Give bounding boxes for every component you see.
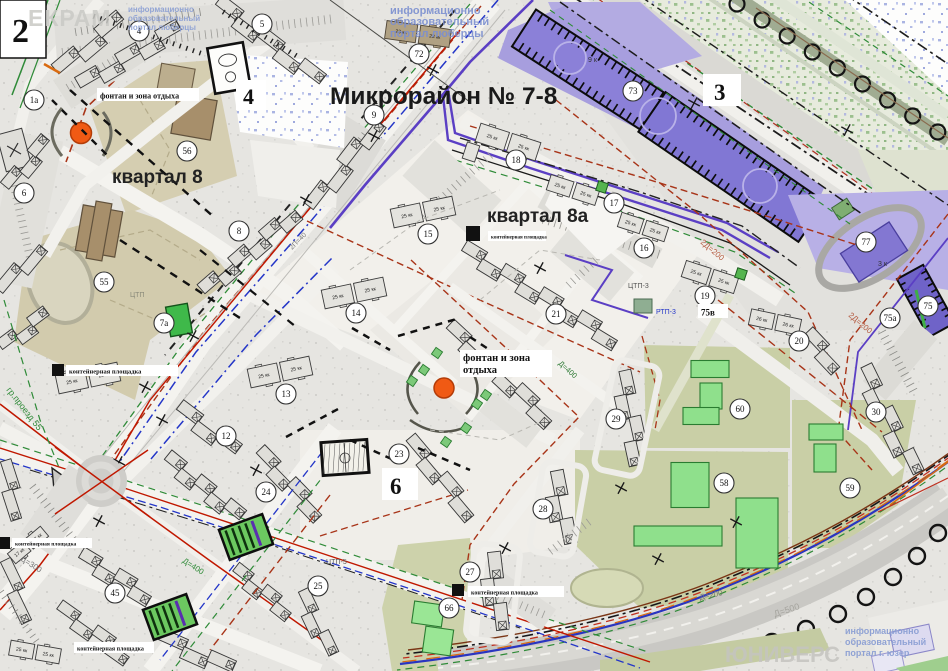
svg-text:фонтан и зона отдыха: фонтан и зона отдыха bbox=[100, 92, 179, 101]
svg-text:9 к: 9 к bbox=[588, 57, 598, 64]
svg-text:квартал 8а: квартал 8а bbox=[487, 206, 589, 227]
svg-text:77: 77 bbox=[862, 237, 872, 247]
svg-text:контейнерная площадка: контейнерная площадка bbox=[15, 541, 77, 548]
svg-text:3 к: 3 к bbox=[878, 261, 888, 268]
svg-text:20: 20 bbox=[795, 336, 805, 346]
svg-text:5: 5 bbox=[260, 19, 265, 29]
svg-text:73: 73 bbox=[629, 86, 639, 96]
svg-text:информационно: информационно bbox=[845, 626, 920, 636]
svg-text:59: 59 bbox=[846, 483, 856, 493]
svg-text:3: 3 bbox=[714, 80, 726, 105]
svg-text:отдыха: отдыха bbox=[463, 365, 498, 376]
svg-text:9: 9 bbox=[372, 110, 377, 120]
svg-text:портал люберцы: портал люберцы bbox=[390, 28, 484, 40]
svg-text:24: 24 bbox=[262, 487, 272, 497]
svg-text:19: 19 bbox=[701, 291, 711, 301]
svg-text:21: 21 bbox=[552, 309, 561, 319]
svg-text:контейнерная площадка: контейнерная площадка bbox=[69, 369, 142, 376]
svg-text:6: 6 bbox=[22, 188, 27, 198]
svg-text:58: 58 bbox=[720, 478, 730, 488]
svg-text:55: 55 bbox=[100, 277, 110, 287]
svg-text:Микрорайон № 7-8: Микрорайон № 7-8 bbox=[330, 83, 557, 110]
svg-text:ЦТП: ЦТП bbox=[130, 292, 145, 299]
svg-text:2: 2 bbox=[12, 13, 29, 50]
svg-text:12: 12 bbox=[222, 431, 231, 441]
svg-text:1а: 1а bbox=[30, 95, 39, 105]
svg-text:контейнерная площадка: контейнерная площадка bbox=[491, 236, 547, 241]
svg-text:28: 28 bbox=[539, 504, 549, 514]
svg-text:портал люберцы: портал люберцы bbox=[128, 23, 196, 32]
svg-text:РТП-3: РТП-3 bbox=[656, 309, 676, 316]
svg-text:66: 66 bbox=[445, 603, 455, 613]
svg-text:6: 6 bbox=[390, 474, 402, 499]
svg-text:17: 17 bbox=[610, 198, 620, 208]
svg-text:15: 15 bbox=[424, 229, 434, 239]
svg-text:контейнерная площадка: контейнерная площадка bbox=[471, 590, 538, 597]
svg-text:4: 4 bbox=[243, 84, 254, 109]
svg-text:8: 8 bbox=[237, 226, 242, 236]
svg-text:18: 18 bbox=[512, 155, 522, 165]
svg-text:портал г. юзер: портал г. юзер bbox=[845, 648, 910, 658]
svg-text:75а: 75а bbox=[884, 313, 897, 323]
svg-text:7а: 7а bbox=[160, 318, 169, 328]
svg-text:29: 29 bbox=[612, 414, 622, 424]
svg-text:фонтан и зона: фонтан и зона bbox=[463, 353, 531, 364]
svg-text:16: 16 bbox=[640, 243, 650, 253]
svg-text:14: 14 bbox=[352, 308, 362, 318]
svg-text:ЕКРАМ: ЕКРАМ bbox=[28, 5, 111, 31]
svg-text:ЮНИВЕРС: ЮНИВЕРС bbox=[725, 642, 840, 667]
svg-text:60: 60 bbox=[736, 404, 746, 414]
svg-text:образовательный: образовательный bbox=[845, 637, 926, 647]
svg-text:72: 72 bbox=[415, 49, 424, 59]
svg-text:30: 30 bbox=[872, 407, 882, 417]
svg-text:образовательный: образовательный bbox=[128, 14, 200, 23]
svg-text:ЦТП-5: ЦТП-5 bbox=[326, 559, 347, 566]
svg-text:информационно: информационно bbox=[128, 5, 194, 14]
svg-text:23: 23 bbox=[395, 449, 405, 459]
svg-text:75в: 75в bbox=[701, 308, 715, 318]
svg-text:27: 27 bbox=[466, 567, 476, 577]
svg-text:45: 45 bbox=[111, 588, 121, 598]
svg-text:образовательный: образовательный bbox=[390, 16, 489, 28]
svg-text:13: 13 bbox=[282, 389, 292, 399]
svg-text:ЦТП-3: ЦТП-3 bbox=[628, 283, 649, 290]
svg-text:75: 75 bbox=[924, 301, 934, 311]
svg-text:56: 56 bbox=[183, 146, 193, 156]
svg-text:25: 25 bbox=[314, 581, 324, 591]
svg-text:контейнерная площадка: контейнерная площадка bbox=[77, 646, 144, 653]
svg-text:квартал 8: квартал 8 bbox=[112, 167, 203, 188]
